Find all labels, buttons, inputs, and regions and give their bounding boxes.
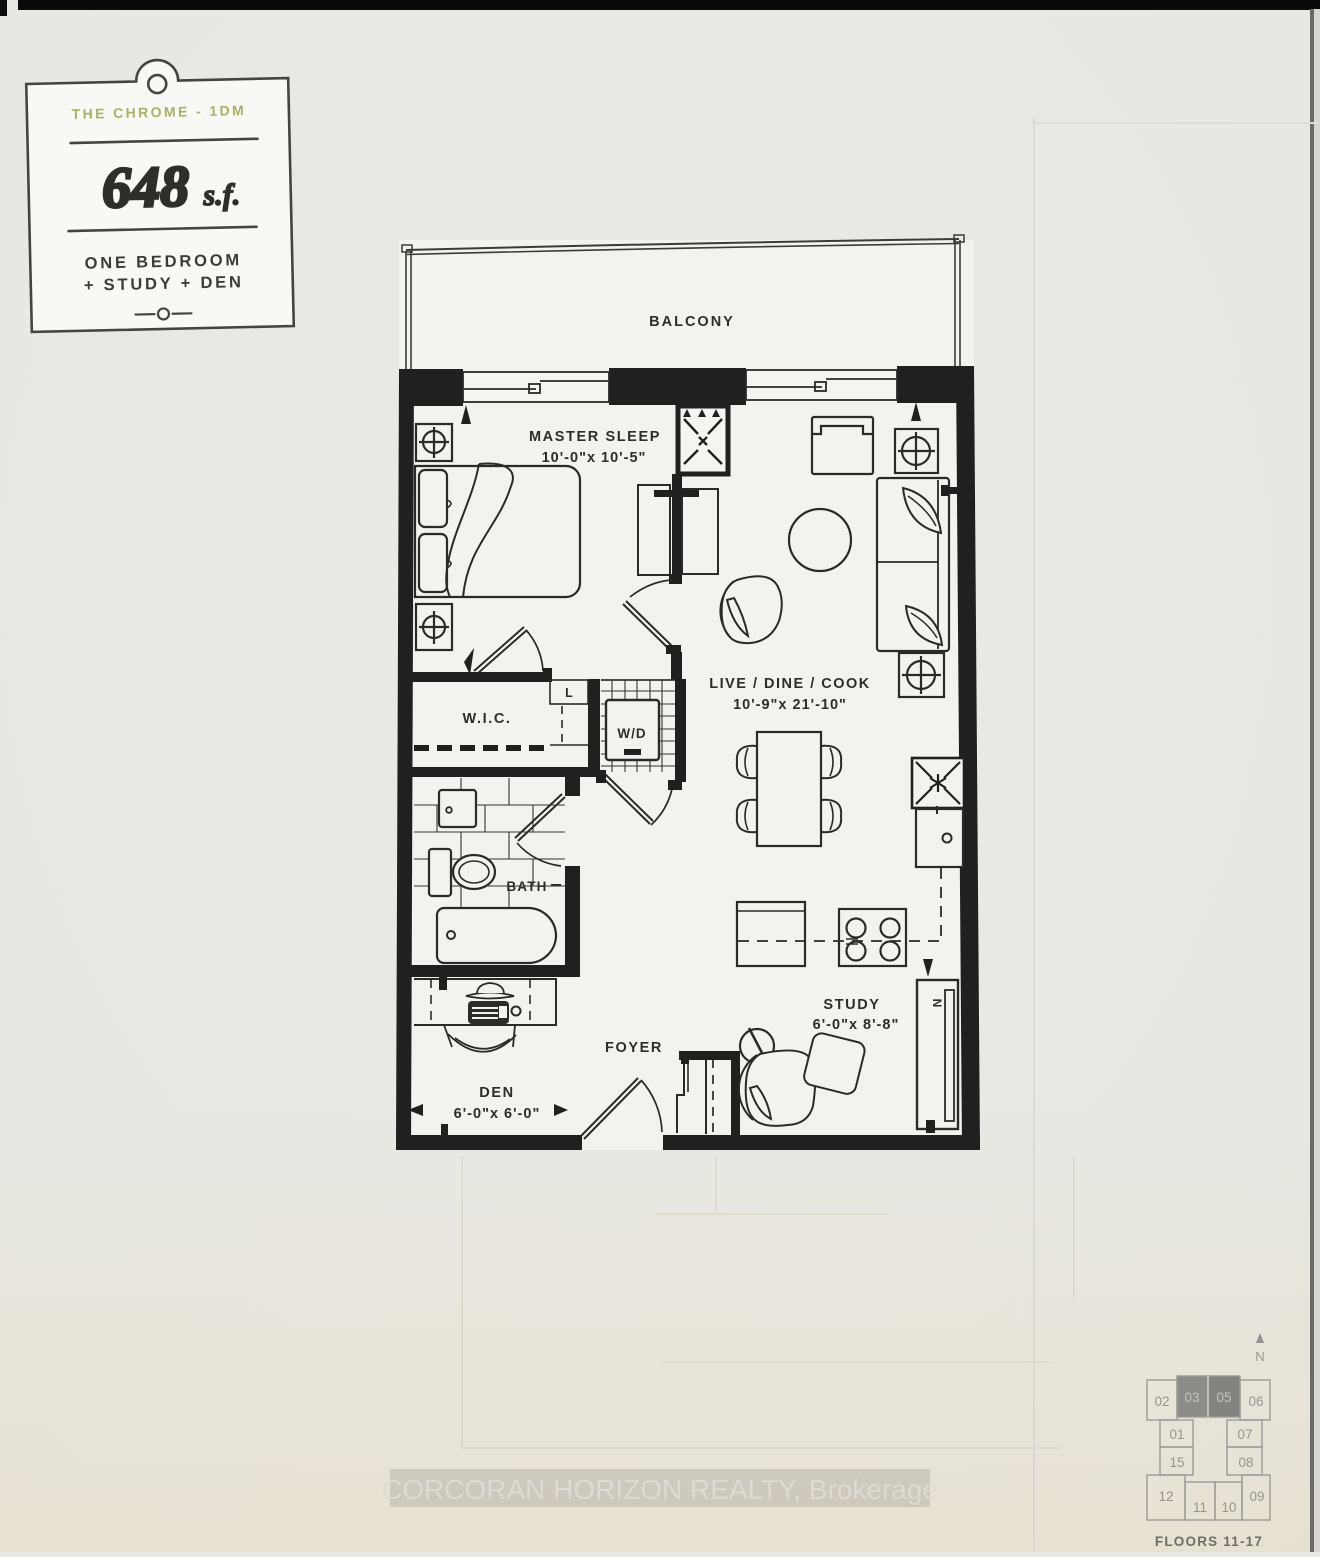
svg-text:6'-0"x 8'-8": 6'-0"x 8'-8"	[813, 1017, 900, 1033]
svg-text:12: 12	[1158, 1489, 1173, 1504]
svg-text:01: 01	[1169, 1427, 1184, 1442]
svg-text:CORCORAN HORIZON REALTY, Broke: CORCORAN HORIZON REALTY, Brokerage	[382, 1474, 938, 1505]
svg-text:06: 06	[1248, 1394, 1263, 1409]
svg-text:s.f.: s.f.	[202, 178, 240, 212]
svg-text:BATH: BATH	[506, 879, 547, 894]
svg-text:10: 10	[1221, 1500, 1236, 1515]
svg-text:08: 08	[1238, 1455, 1253, 1470]
svg-text:02: 02	[1154, 1394, 1169, 1409]
svg-text:N: N	[930, 999, 944, 1008]
svg-text:ONE BEDROOM: ONE BEDROOM	[84, 251, 242, 273]
svg-text:FLOORS 11-17: FLOORS 11-17	[1155, 1534, 1263, 1549]
svg-text:STUDY: STUDY	[823, 997, 880, 1013]
svg-text:09: 09	[1249, 1489, 1264, 1504]
svg-text:LIVE / DINE / COOK: LIVE / DINE / COOK	[709, 676, 871, 692]
svg-text:+ STUDY + DEN: + STUDY + DEN	[84, 273, 244, 295]
svg-text:15: 15	[1169, 1455, 1184, 1470]
svg-text:648: 648	[101, 153, 189, 220]
svg-text:W/D: W/D	[617, 726, 646, 741]
svg-text:N: N	[1255, 1349, 1264, 1364]
svg-text:FOYER: FOYER	[605, 1040, 663, 1056]
svg-text:BALCONY: BALCONY	[649, 314, 735, 330]
svg-text:11: 11	[1193, 1500, 1207, 1515]
svg-text:07: 07	[1237, 1427, 1252, 1442]
svg-text:05: 05	[1216, 1390, 1231, 1405]
svg-text:10'-0"x 10'-5": 10'-0"x 10'-5"	[542, 450, 647, 466]
svg-text:MASTER SLEEP: MASTER SLEEP	[529, 429, 661, 445]
svg-text:W.I.C.: W.I.C.	[462, 711, 511, 727]
svg-text:03: 03	[1184, 1390, 1199, 1405]
svg-text:L: L	[565, 686, 573, 700]
svg-text:DEN: DEN	[479, 1085, 514, 1101]
svg-text:6'-0"x 6'-0": 6'-0"x 6'-0"	[454, 1106, 541, 1122]
svg-text:10'-9"x 21'-10": 10'-9"x 21'-10"	[733, 697, 847, 713]
